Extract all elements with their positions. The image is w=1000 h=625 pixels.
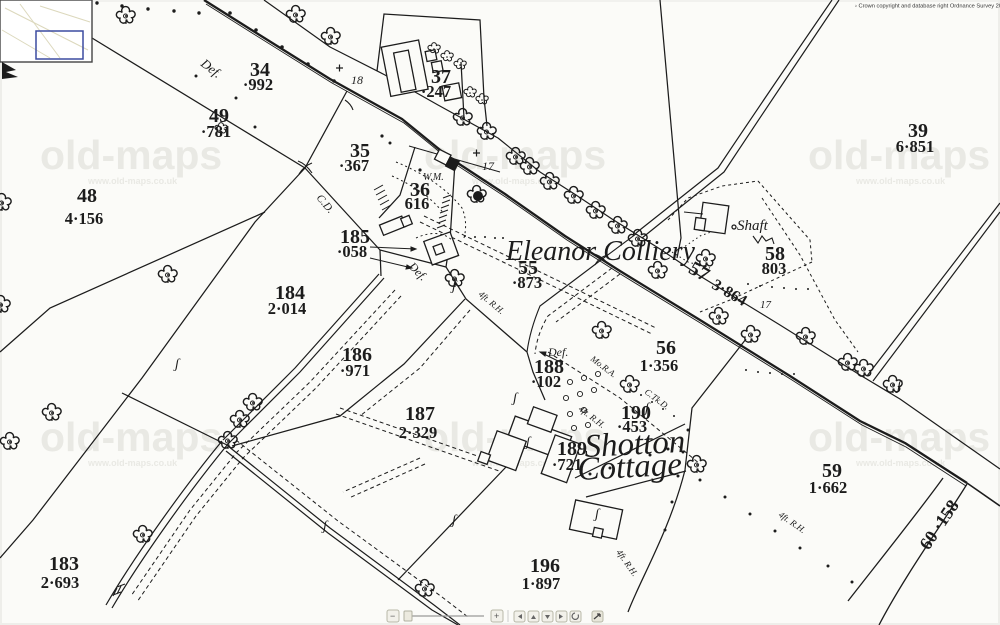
- svg-text:187: 187: [405, 403, 435, 425]
- svg-text:4·156: 4·156: [65, 209, 104, 228]
- svg-text:·992: ·992: [243, 75, 273, 94]
- svg-text:2·329: 2·329: [399, 423, 438, 442]
- svg-text:6·851: 6·851: [896, 137, 935, 156]
- svg-text:W.M.: W.M.: [423, 172, 444, 183]
- svg-text:+: +: [494, 611, 499, 621]
- svg-text:18: 18: [351, 73, 363, 87]
- svg-text:old-maps: old-maps: [40, 414, 222, 460]
- svg-text:Shaft: Shaft: [737, 218, 769, 234]
- svg-text:616: 616: [405, 194, 430, 213]
- svg-text:183: 183: [49, 553, 79, 575]
- svg-text:−: −: [390, 611, 395, 621]
- svg-text:1·662: 1·662: [809, 478, 848, 497]
- svg-text:·102: ·102: [531, 372, 561, 391]
- svg-text:Cottage: Cottage: [577, 447, 683, 488]
- svg-text:·367: ·367: [339, 156, 369, 175]
- svg-text:17: 17: [760, 299, 772, 311]
- svg-text:2·693: 2·693: [41, 573, 80, 592]
- svg-text:1·897: 1·897: [522, 574, 561, 593]
- svg-text:old-maps: old-maps: [40, 132, 222, 178]
- svg-text:old-maps: old-maps: [808, 414, 990, 460]
- svg-text:2·014: 2·014: [268, 299, 307, 318]
- svg-text:www.old-maps.co.uk: www.old-maps.co.uk: [855, 176, 946, 186]
- svg-text:·873: ·873: [512, 273, 542, 292]
- svg-text:www.old-maps.co.uk: www.old-maps.co.uk: [87, 176, 178, 186]
- svg-text:·781: ·781: [201, 122, 231, 141]
- svg-text:·247: ·247: [421, 82, 451, 101]
- svg-text:› Crown copyright and database: › Crown copyright and database right Ord…: [855, 4, 1000, 10]
- svg-text:www.old-maps.co.uk: www.old-maps.co.uk: [87, 458, 178, 468]
- svg-text:17: 17: [482, 159, 495, 173]
- svg-text:·058: ·058: [337, 242, 367, 261]
- svg-text:803: 803: [762, 259, 787, 278]
- svg-text:·971: ·971: [340, 361, 370, 380]
- svg-text:Eleanor Colliery: Eleanor Colliery: [505, 236, 696, 267]
- svg-text:1·356: 1·356: [640, 356, 679, 375]
- svg-text:48: 48: [77, 185, 97, 207]
